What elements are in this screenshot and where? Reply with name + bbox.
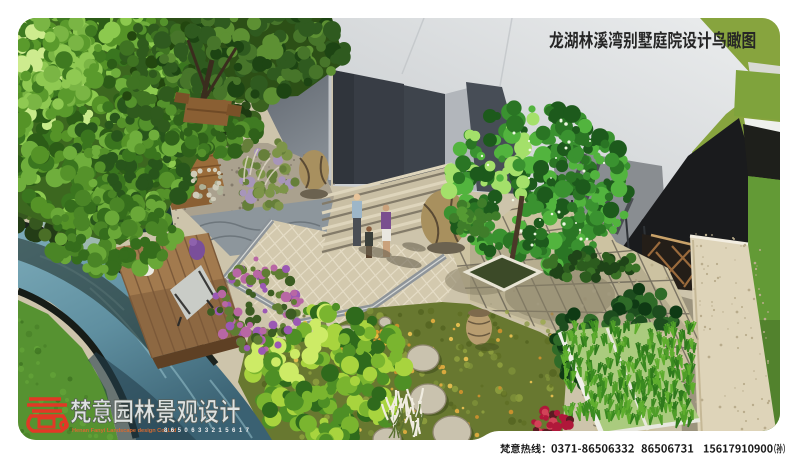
svg-text:Henan Fanyi Landscape design C: Henan Fanyi Landscape design Co.,Ltd bbox=[72, 428, 177, 434]
svg-text:8 6 5 0 6 3 3 2 1 5 6 1 7: 8 6 5 0 6 3 3 2 1 5 6 1 7 bbox=[164, 428, 250, 434]
